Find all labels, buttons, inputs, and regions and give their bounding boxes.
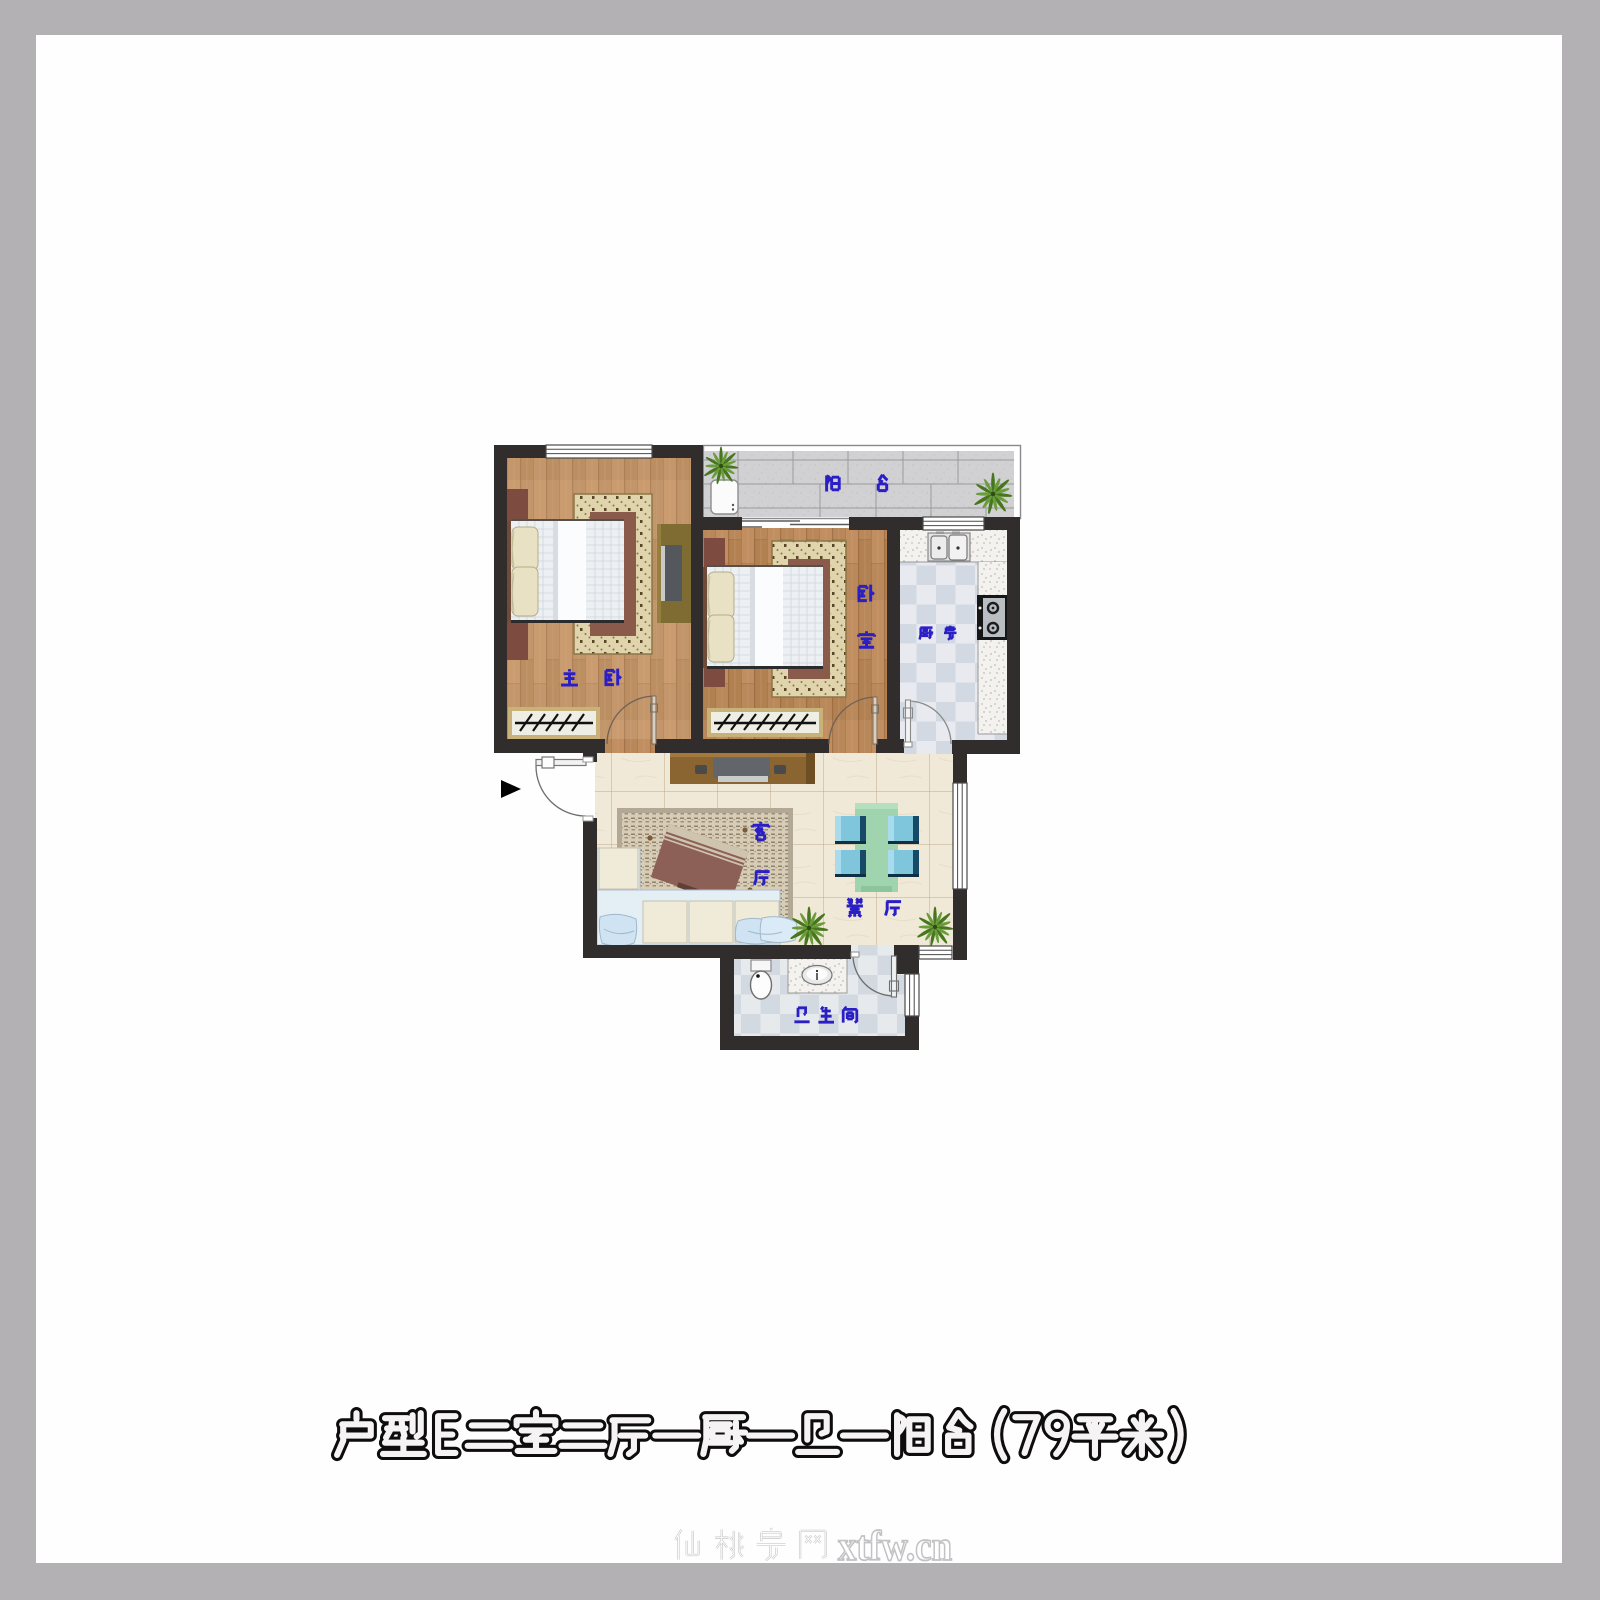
svg-text:xtfw.cn: xtfw.cn: [838, 1524, 952, 1570]
